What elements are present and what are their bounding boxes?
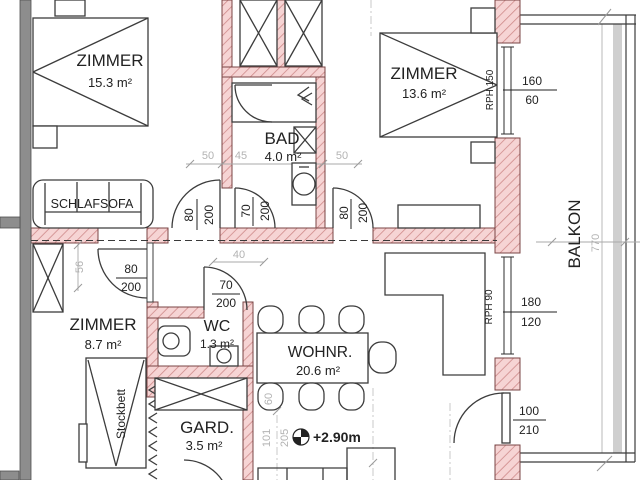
dimension-label: 770: [590, 234, 602, 252]
furniture-label-schlafsofa: SCHLAFSOFA: [51, 197, 134, 211]
door-size-label: 80: [182, 208, 196, 222]
door-size-label: 70: [219, 278, 233, 292]
door-size-label: 200: [216, 296, 236, 310]
room-label-zimmer-top-right: ZIMMER: [390, 64, 457, 83]
dimension-label: 205: [279, 429, 291, 447]
washbasin-symbol-bad: [292, 163, 316, 205]
nightstand-symbol: [471, 142, 495, 163]
door-size-label: 80: [337, 206, 351, 220]
wardrobe-symbol-gard: [155, 378, 247, 410]
area-label-zimmer-top-right: 13.6 m²: [402, 86, 447, 101]
parapet-height-label: RPH 90: [484, 289, 495, 324]
window-size-label: 160: [522, 74, 542, 88]
room-label-bad: BAD: [265, 129, 300, 148]
level-mark: +2.90m: [293, 429, 361, 445]
ladder-symbol: [79, 424, 87, 462]
door-size-label: 80: [124, 262, 138, 276]
shower-symbol: [232, 83, 316, 122]
door-size-label: 200: [356, 203, 370, 223]
area-label-wohnzimmer: 20.6 m²: [296, 363, 341, 378]
level-value: +2.90m: [313, 429, 361, 445]
door-size-label: 70: [239, 204, 253, 218]
room-label-zimmer-bottom-left: ZIMMER: [69, 315, 136, 334]
dimension-label: 50: [336, 150, 348, 162]
room-label-balkon: BALKON: [565, 200, 584, 269]
furniture-label-stockbett: Stockbett: [114, 388, 128, 439]
bunk-bed-symbol: [79, 358, 146, 468]
parapet-height-label: RPH 150: [485, 69, 496, 110]
window-size-label: 120: [521, 315, 541, 329]
door-size-label: 200: [258, 201, 272, 221]
dimension-label: 101: [261, 429, 273, 447]
window-size-label: 180: [521, 295, 541, 309]
room-label-garderobe: GARD.: [180, 418, 234, 437]
dimension-label: 45: [235, 150, 247, 162]
sideboard-symbol: [398, 205, 480, 228]
toilet-symbol: [158, 326, 190, 356]
area-label-zimmer-top-left: 15.3 m²: [88, 75, 133, 90]
dimension-label: 60: [263, 393, 275, 405]
door-size-label: 200: [121, 280, 141, 294]
area-label-zimmer-bottom-left: 8.7 m²: [85, 337, 123, 352]
nightstand-symbol: [471, 8, 495, 33]
room-label-wc: WC: [204, 318, 231, 335]
door-size-label: 200: [202, 205, 216, 225]
area-label-bad: 4.0 m²: [265, 149, 303, 164]
room-label-zimmer-top-left: ZIMMER: [76, 51, 143, 70]
nightstand-symbol: [33, 126, 57, 148]
door-size-label: 100: [519, 404, 539, 418]
wardrobe-symbol-small-room: [33, 244, 63, 312]
area-label-wc: 1.3 m²: [200, 337, 234, 351]
floorplan-canvas: ZIMMER 15.3 m² ZIMMER 13.6 m² BAD 4.0 m²…: [0, 0, 640, 480]
nightstand-symbol: [55, 0, 85, 16]
bed-symbol-large: [33, 0, 148, 148]
dimension-label: 56: [74, 261, 86, 273]
window-size-label: 60: [525, 93, 539, 107]
door-size-label: 210: [519, 423, 539, 437]
dimension-label: 40: [233, 249, 245, 261]
balcony-slab-band: [613, 24, 622, 453]
area-label-garderobe: 3.5 m²: [186, 438, 224, 453]
room-label-wohnzimmer: WOHNR.: [288, 344, 353, 361]
light-partition-wall: [147, 243, 153, 302]
dimension-label: 50: [202, 150, 214, 162]
